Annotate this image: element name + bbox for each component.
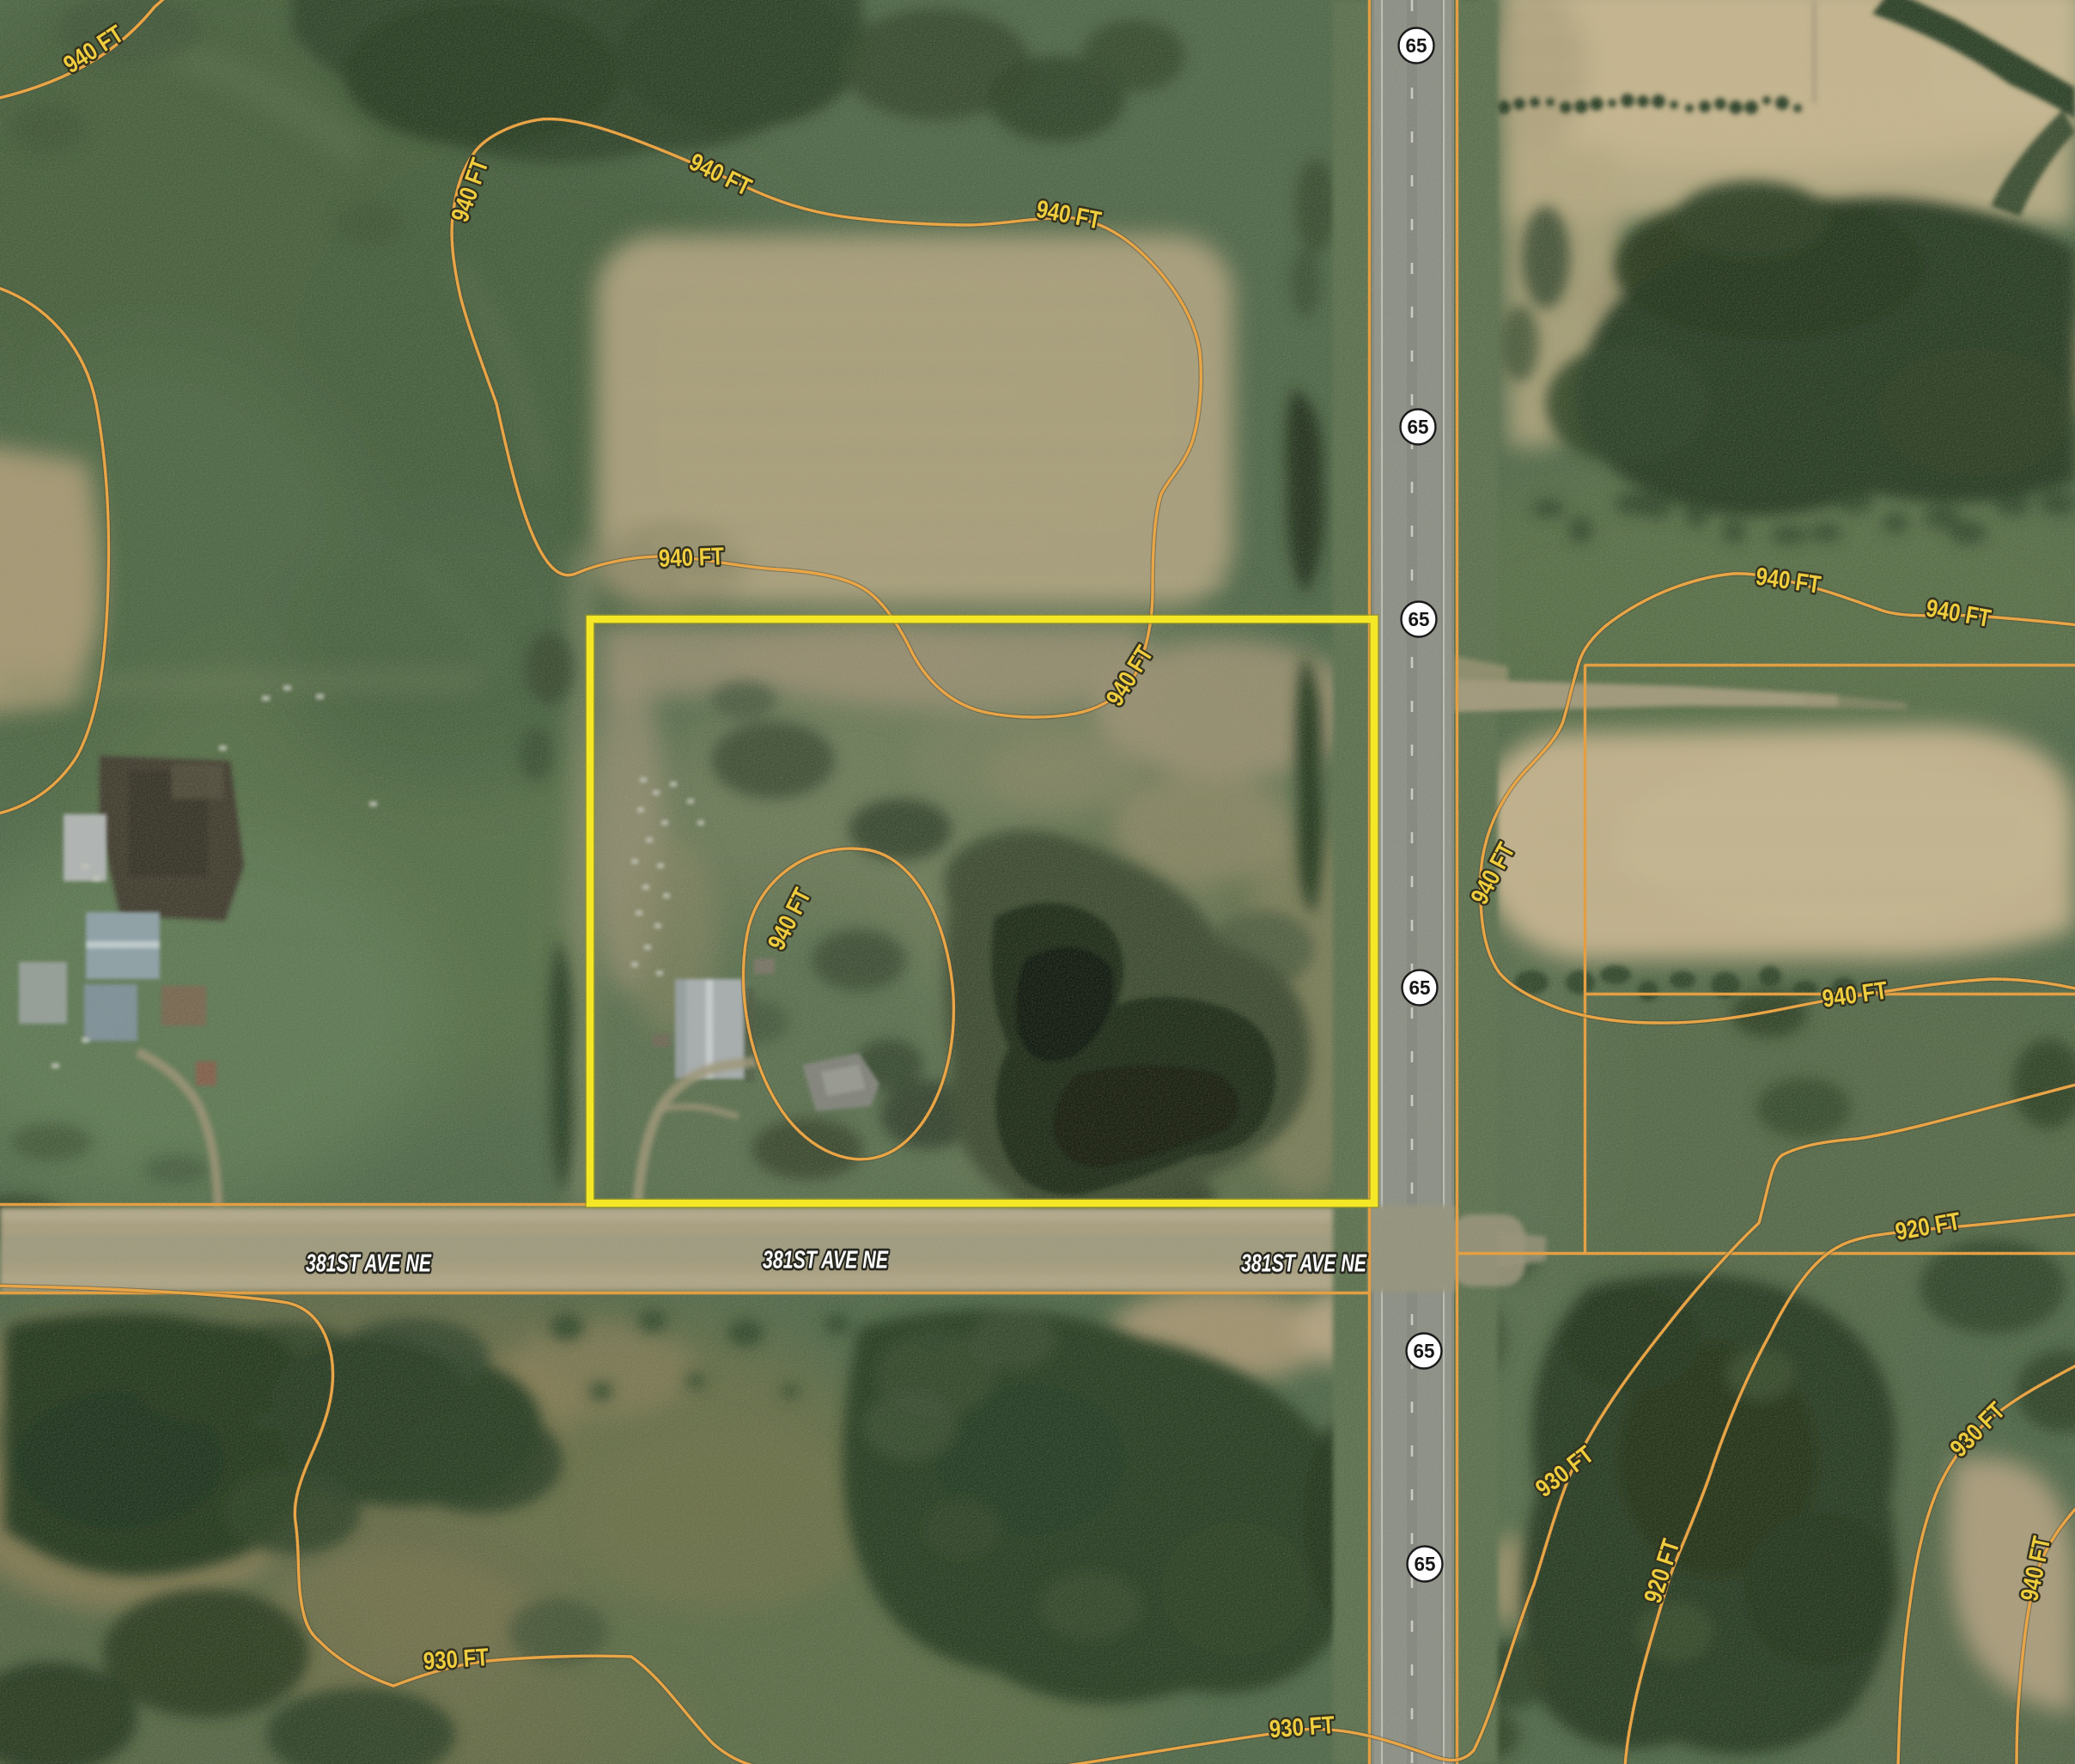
svg-text:65: 65 xyxy=(1409,608,1430,630)
svg-text:381ST AVE NE: 381ST AVE NE xyxy=(306,1250,432,1278)
svg-text:381ST AVE NE: 381ST AVE NE xyxy=(763,1247,889,1274)
svg-text:65: 65 xyxy=(1406,34,1427,57)
svg-text:381ST AVE NE: 381ST AVE NE xyxy=(1241,1250,1367,1278)
svg-text:65: 65 xyxy=(1408,416,1429,438)
svg-text:65: 65 xyxy=(1414,1340,1435,1362)
svg-text:65: 65 xyxy=(1409,976,1431,999)
svg-text:930 FT: 930 FT xyxy=(1269,1712,1336,1743)
svg-text:65: 65 xyxy=(1415,1553,1436,1575)
svg-text:930 FT: 930 FT xyxy=(423,1644,490,1676)
svg-text:940 FT: 940 FT xyxy=(658,543,724,573)
